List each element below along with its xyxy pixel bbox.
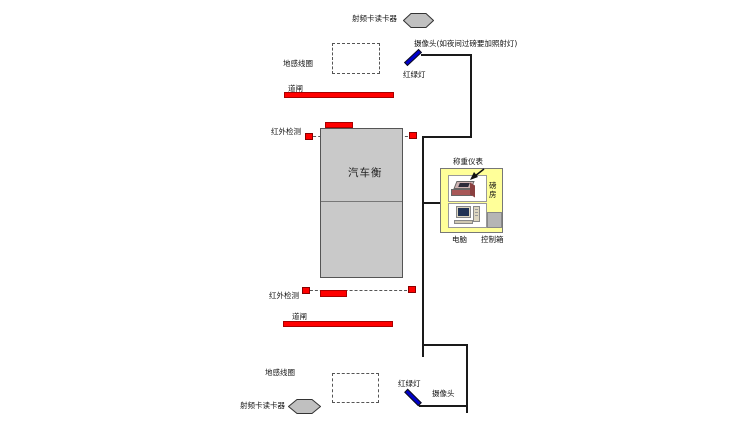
rfid-reader-icon-bottom [288,399,321,414]
barrier-label-bottom: 道闸 [292,312,307,321]
computer-label: 电脑 [452,235,467,244]
wire-bottom-right-vertical [466,344,468,413]
computer-tower-icon [473,206,480,222]
computer-keyboard-icon [454,220,473,224]
wire-bottom-return-horizontal [419,405,467,407]
traffic-light-icon-bottom [404,389,422,407]
camera-label-top: 摄像头(如夜间过磅要加照射灯) [414,39,517,48]
infrared-sensor-top-right [409,132,417,139]
barrier-gate-bottom [283,321,393,327]
barrier-gate-top [284,92,394,98]
wire-bottom-horizontal [422,344,468,346]
computer-screen [458,208,469,216]
scale-stop-bar-bottom [320,290,347,297]
infrared-sensor-bottom-left [302,287,310,294]
weighbridge-layout-diagram: 射频卡读卡器 摄像头(如夜间过磅要加照射灯) 地感线圈 红绿灯 道闸 红外检测 … [0,0,746,428]
ground-loop-bottom [332,373,379,403]
rfid-reader-icon-top [403,13,434,28]
infrared-label-bottom: 红外检测 [269,291,299,300]
indicator-device-side [470,183,475,198]
wire-main-vertical [422,136,424,357]
wire-top-horizontal [421,54,472,56]
control-box-icon [487,212,502,228]
rfid-reader-label-bottom: 射频卡读卡器 [240,401,285,410]
truck-scale-platform: 汽车衡 [320,128,403,278]
traffic-light-label-bottom: 红绿灯 [398,379,421,388]
wire-top-return-horizontal [422,136,472,138]
wire-top-right-vertical [470,54,472,138]
indicator-label: 称重仪表 [453,157,483,166]
ground-loop-top [332,43,380,74]
control-box-label: 控制箱 [481,235,504,244]
camera-label-bottom: 摄像头 [432,389,455,398]
infrared-label-top: 红外检测 [271,127,301,136]
weigh-house-label: 磅房 [489,181,499,199]
infrared-sensor-top-left [305,133,313,140]
indicator-device-body [451,189,472,196]
indicator-screen [458,183,470,187]
computer-monitor-icon [456,206,471,218]
traffic-light-icon-top [404,49,422,66]
ground-loop-label-top: 地感线圈 [283,59,313,68]
rfid-reader-label-top: 射频卡读卡器 [352,14,397,23]
infrared-sensor-bottom-right [408,286,416,293]
scale-section-divider [321,201,402,202]
ground-loop-label-bottom: 地感线圈 [265,368,295,377]
traffic-light-label-top: 红绿灯 [403,70,426,79]
scale-label: 汽车衡 [348,165,383,180]
indicator-pointer-arrow-icon [468,167,486,183]
